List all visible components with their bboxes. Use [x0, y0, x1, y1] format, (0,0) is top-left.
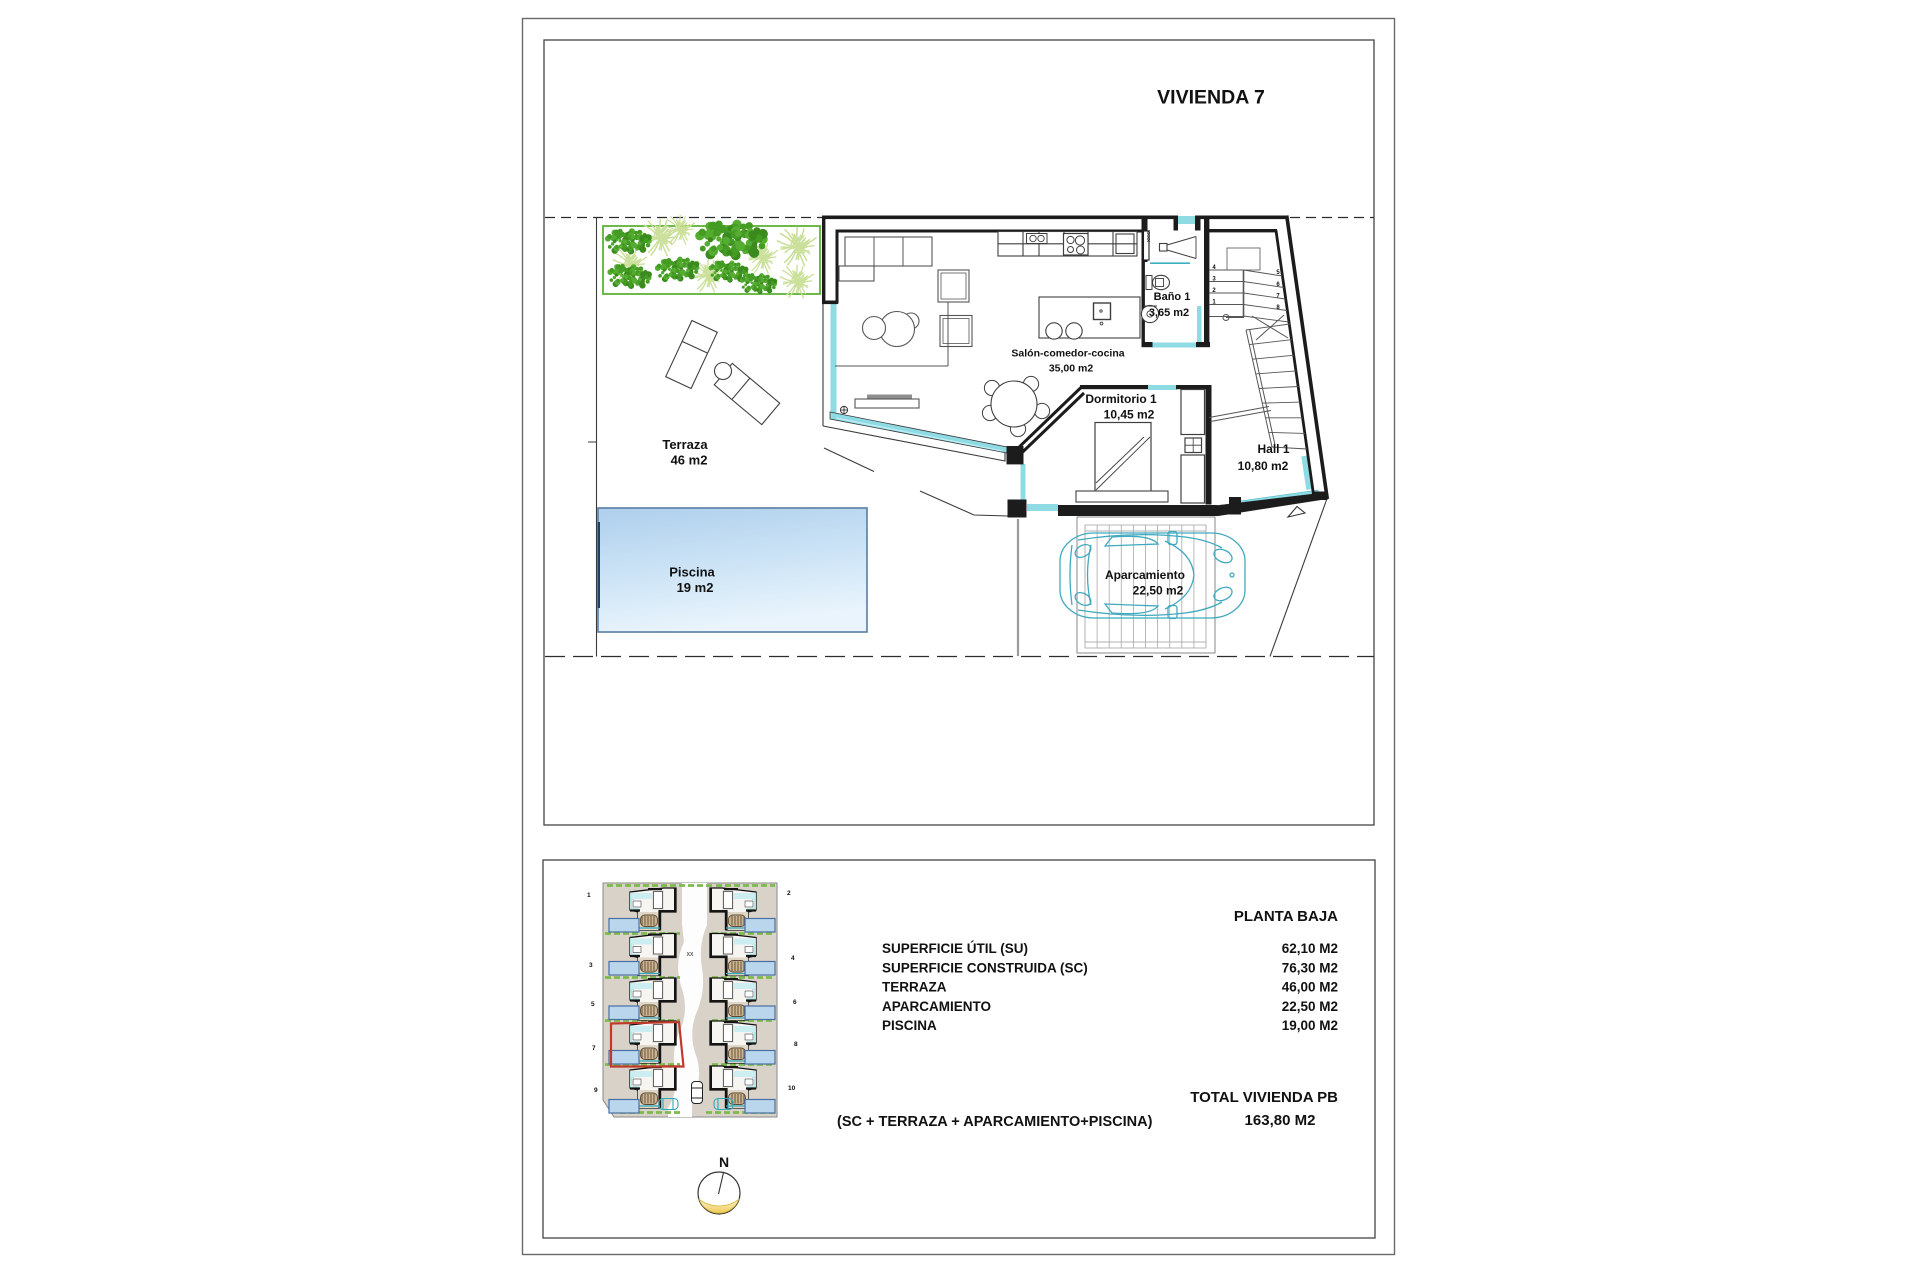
svg-text:XX: XX — [687, 952, 694, 958]
svg-text:Baño 1: Baño 1 — [1154, 291, 1191, 303]
svg-text:19,00 M2: 19,00 M2 — [1282, 1018, 1338, 1033]
svg-text:Aparcamiento: Aparcamiento — [1105, 568, 1185, 582]
svg-text:VIVIENDA 7: VIVIENDA 7 — [1157, 87, 1265, 109]
svg-text:SUPERFICIE ÚTIL (SU): SUPERFICIE ÚTIL (SU) — [882, 941, 1028, 956]
svg-text:PLANTA BAJA: PLANTA BAJA — [1234, 908, 1338, 925]
svg-text:1: 1 — [587, 892, 591, 899]
svg-text:4: 4 — [791, 955, 795, 962]
svg-text:PISCINA: PISCINA — [882, 1018, 937, 1033]
svg-text:10,80 m2: 10,80 m2 — [1238, 459, 1289, 473]
svg-text:7: 7 — [592, 1045, 596, 1052]
svg-text:Salón-comedor-cocina: Salón-comedor-cocina — [1011, 348, 1124, 360]
svg-text:9: 9 — [594, 1087, 598, 1094]
svg-text:(SC + TERRAZA + APARCAMIENTO+P: (SC + TERRAZA + APARCAMIENTO+PISCINA) — [837, 1114, 1153, 1130]
svg-text:2: 2 — [787, 890, 791, 897]
svg-text:6: 6 — [793, 999, 797, 1006]
svg-text:3: 3 — [589, 962, 593, 969]
svg-text:Terraza: Terraza — [662, 437, 708, 452]
svg-text:3,65 m2: 3,65 m2 — [1149, 307, 1189, 319]
svg-text:5: 5 — [591, 1001, 595, 1008]
svg-text:Piscina: Piscina — [669, 565, 715, 580]
svg-text:N: N — [719, 1154, 729, 1170]
svg-text:46,00 M2: 46,00 M2 — [1282, 980, 1338, 995]
svg-text:19 m2: 19 m2 — [677, 580, 714, 595]
svg-text:Dormitorio 1: Dormitorio 1 — [1085, 392, 1157, 406]
svg-text:TERRAZA: TERRAZA — [882, 980, 947, 995]
svg-text:XXXX: XXXX — [1146, 230, 1151, 243]
svg-text:22,50 m2: 22,50 m2 — [1133, 584, 1184, 598]
svg-text:APARCAMIENTO: APARCAMIENTO — [882, 999, 991, 1014]
svg-text:46 m2: 46 m2 — [671, 453, 708, 468]
svg-text:TOTAL VIVIENDA PB: TOTAL VIVIENDA PB — [1190, 1089, 1338, 1106]
svg-text:35,00 m2: 35,00 m2 — [1049, 363, 1094, 375]
svg-text:163,80 M2: 163,80 M2 — [1245, 1112, 1316, 1129]
svg-text:62,10 M2: 62,10 M2 — [1282, 941, 1338, 956]
svg-text:Hall 1: Hall 1 — [1257, 442, 1289, 456]
svg-text:SUPERFICIE CONSTRUIDA (SC): SUPERFICIE CONSTRUIDA (SC) — [882, 960, 1088, 975]
svg-text:22,50 M2: 22,50 M2 — [1282, 999, 1338, 1014]
svg-text:8: 8 — [794, 1041, 798, 1048]
svg-text:10,45 m2: 10,45 m2 — [1104, 408, 1155, 422]
svg-text:76,30 M2: 76,30 M2 — [1282, 960, 1338, 975]
svg-text:10: 10 — [788, 1085, 796, 1092]
